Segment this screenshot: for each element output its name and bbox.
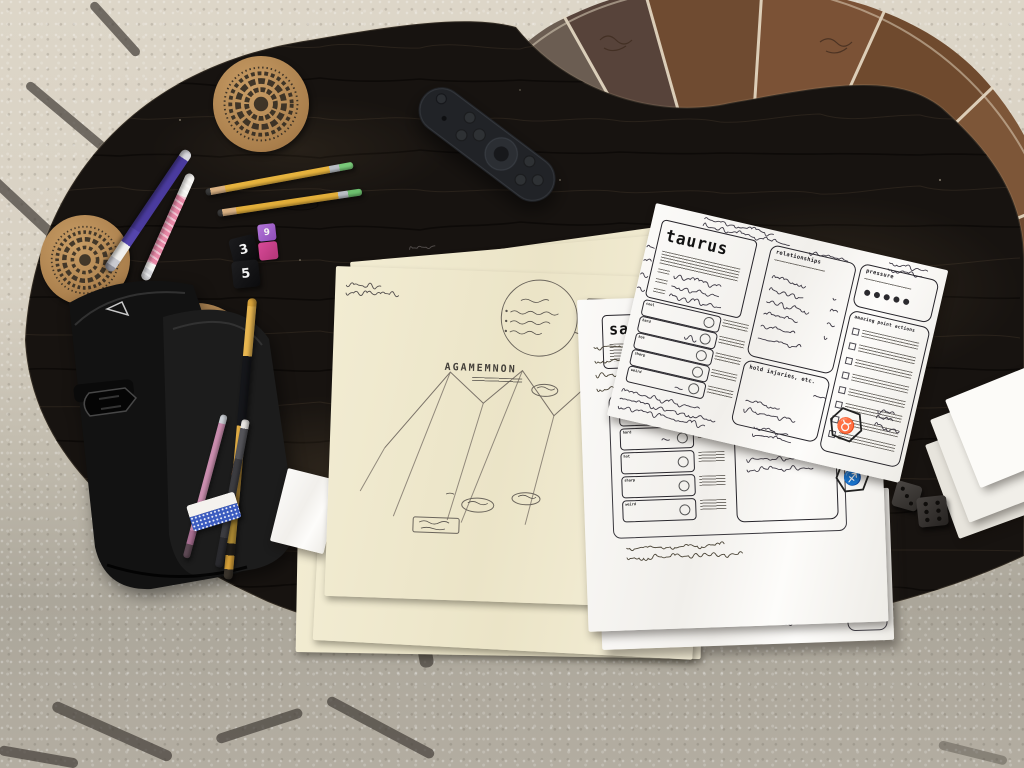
relationships-handwriting: [755, 270, 835, 360]
stat-box: hot: [620, 450, 695, 475]
map-circle-note: [500, 279, 579, 358]
stat-circle: [702, 316, 715, 329]
stat-circle: [678, 456, 689, 467]
stat-label: hot: [623, 454, 630, 458]
stat-label: hard: [623, 430, 632, 434]
stat-label: cool: [646, 301, 655, 307]
field-label: [653, 288, 666, 295]
stat-sidenote: [710, 369, 737, 383]
map-label-oval: [532, 384, 558, 397]
photo-coffee-table-scene: 3 5 9: [0, 0, 1024, 768]
pressure-dot: [873, 291, 880, 298]
divider: [864, 278, 911, 291]
pressure-dots: [864, 289, 910, 305]
stat-circle: [691, 366, 704, 379]
stat-sidenote: [700, 499, 726, 510]
die-value: 9: [263, 227, 270, 238]
stat-label: sharp: [624, 478, 635, 482]
stat-sidenote: [707, 385, 734, 399]
stat-value-handwritten: [683, 329, 699, 341]
stat-value-handwritten: [661, 432, 675, 442]
cork-coaster: [213, 56, 309, 152]
handwriting-note: [625, 538, 766, 565]
stat-circle: [687, 382, 700, 395]
stat-box: sharp: [621, 474, 696, 499]
stat-sidenote: [722, 319, 749, 333]
stat-label: hard: [642, 318, 651, 324]
grey-die: [916, 495, 949, 528]
stat-label: weird: [625, 502, 636, 506]
stat-label: hot: [638, 335, 645, 340]
stat-label: sharp: [634, 351, 645, 357]
map-label-oval: [512, 492, 540, 505]
taurus-glyph: ♉: [834, 414, 858, 438]
coaster-mandala: [213, 56, 309, 152]
stat-sidenote: [714, 352, 741, 366]
handwriting-note: [345, 280, 408, 300]
stat-sidenote: [699, 475, 725, 486]
pressure-dot: [893, 296, 900, 303]
field-label: [657, 268, 670, 275]
stat-circle: [678, 480, 689, 491]
map-label-box: [413, 517, 459, 534]
stat-value-handwritten: [674, 379, 688, 390]
pressure-dot: [864, 289, 871, 296]
pressure-dot: [883, 294, 890, 301]
stat-box: weird: [622, 498, 697, 523]
stat-sidenote: [718, 336, 745, 350]
die-value: 3: [238, 241, 250, 258]
pink-die: [258, 241, 279, 261]
handwriting-note: [742, 395, 809, 429]
pressure-dot: [903, 298, 910, 305]
die-pips: [916, 495, 949, 528]
stat-circle: [695, 349, 708, 362]
pink-die: 9: [257, 223, 277, 242]
stat-circle: [679, 504, 690, 515]
pink-dice-stack: 9: [256, 223, 282, 265]
stat-label: weird: [630, 368, 641, 374]
pencil-case: [55, 265, 305, 595]
stat-sidenote: [698, 451, 724, 462]
field-label: [655, 278, 668, 285]
stat-circle: [699, 332, 712, 345]
